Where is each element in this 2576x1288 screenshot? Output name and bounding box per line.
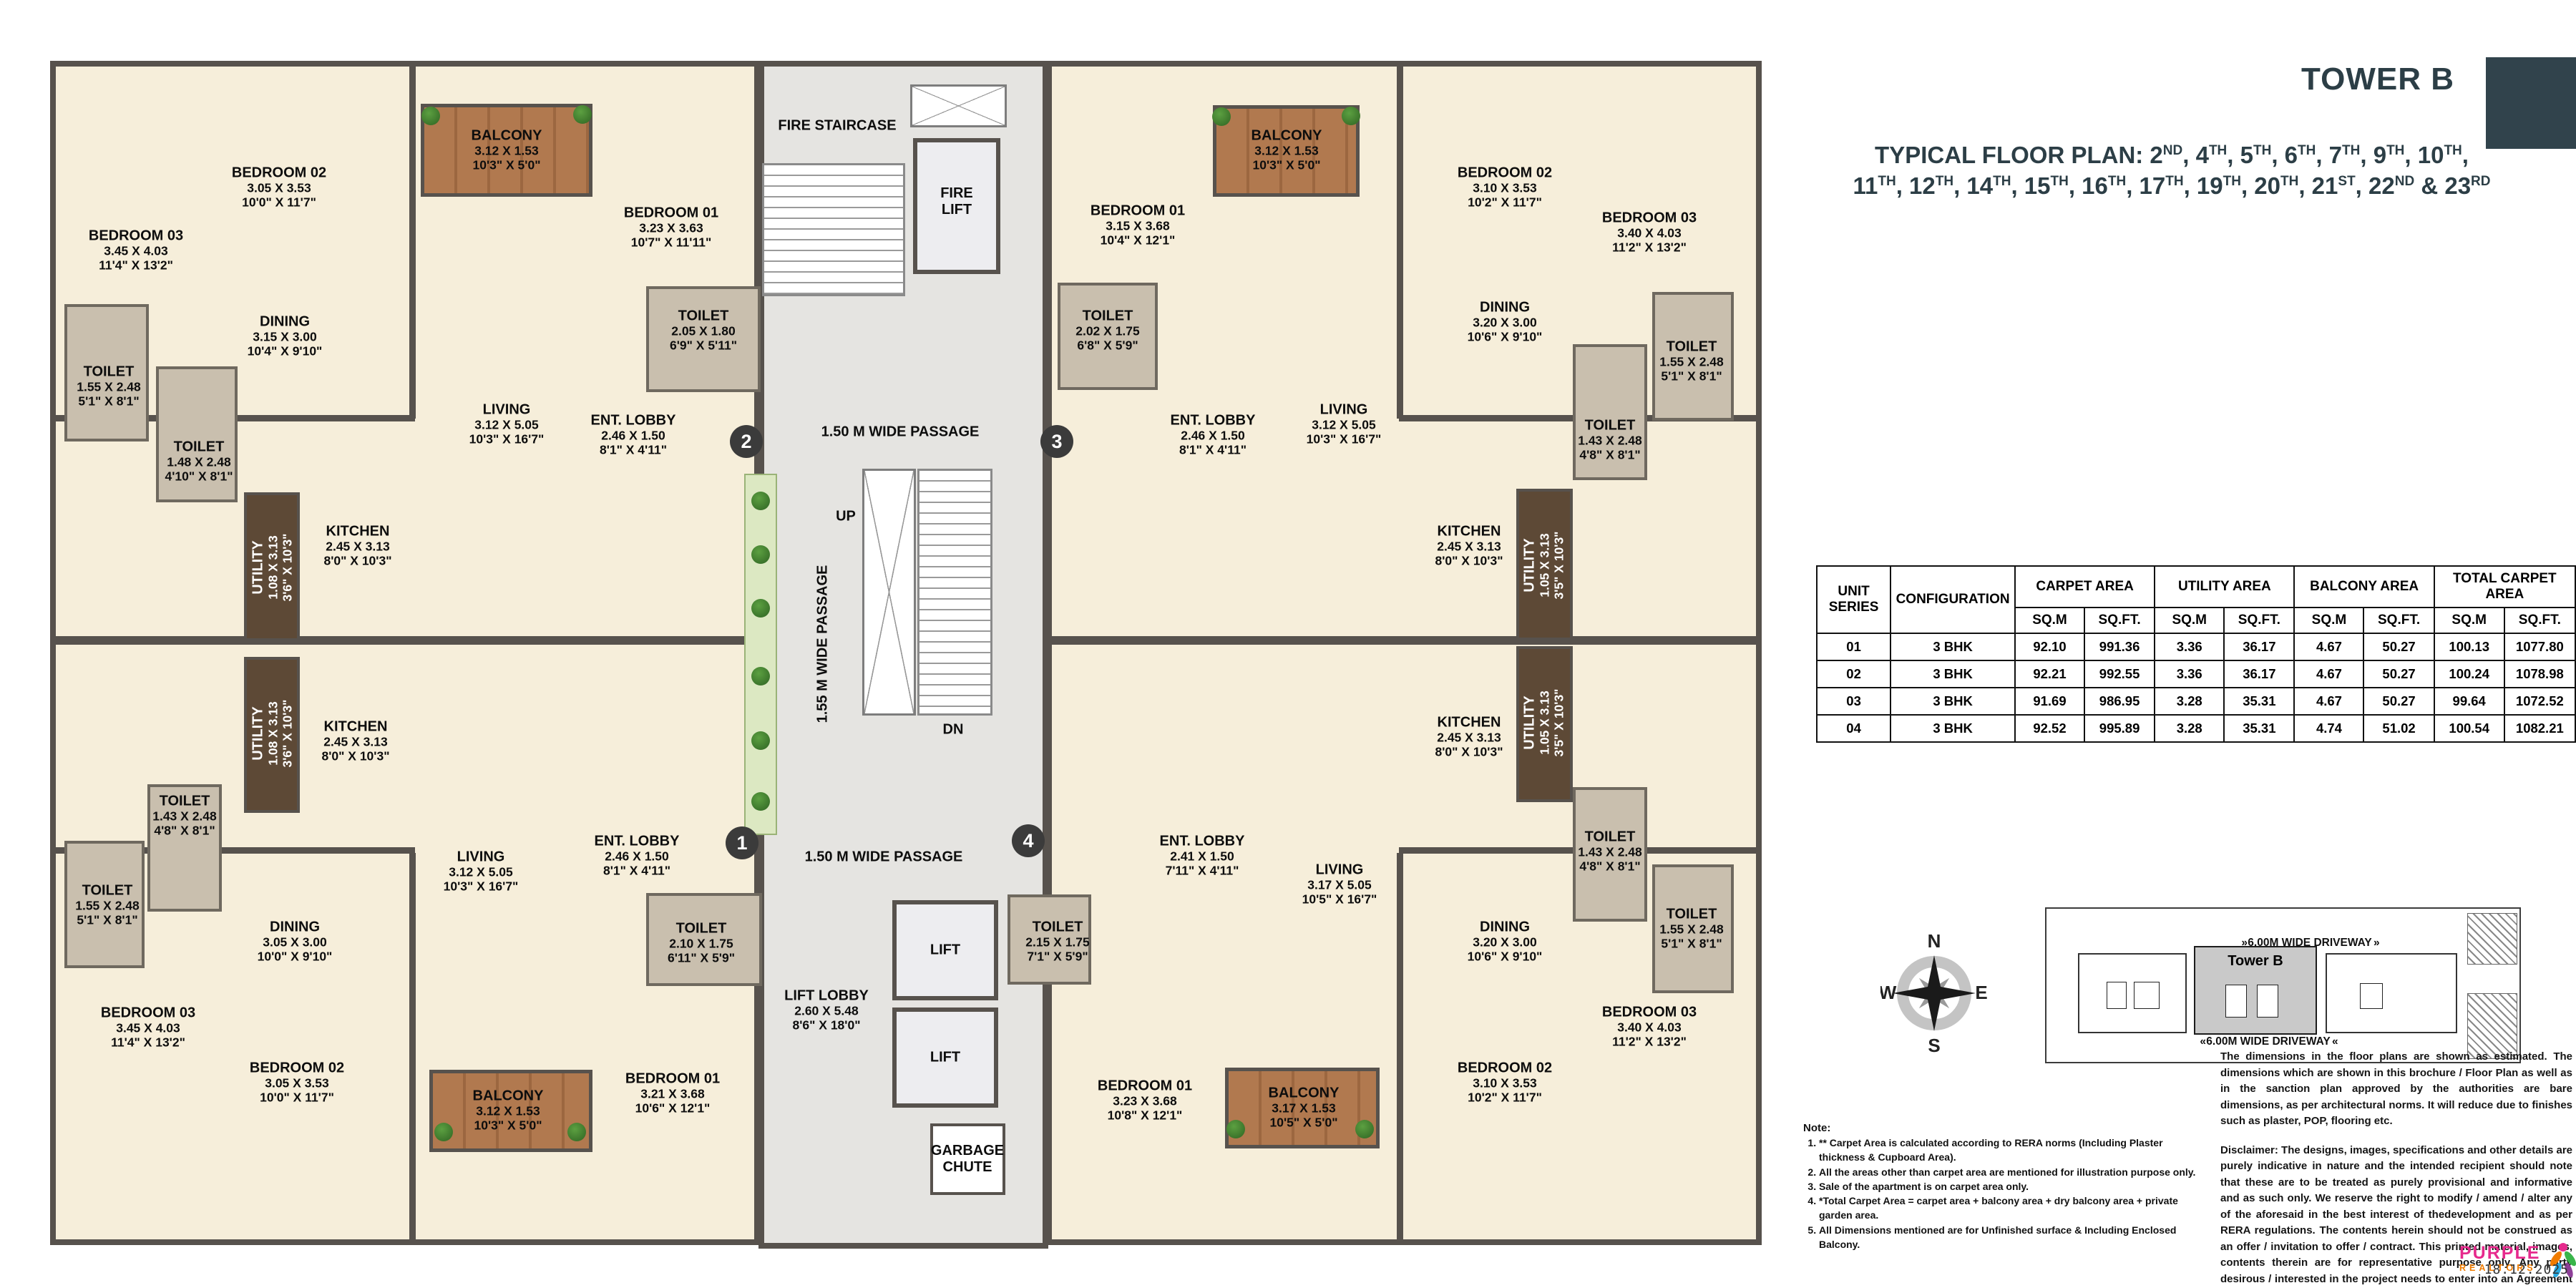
tree-icon	[751, 731, 770, 750]
site-building-left	[2078, 953, 2187, 1033]
shaft-zone	[910, 84, 1007, 127]
driveway-label-bottom: « 6.00M WIDE DRIVEWAY «	[2200, 1035, 2336, 1048]
room-label: KITCHEN2.45 X 3.138'0" X 10'3"	[322, 719, 390, 764]
room-label: UP	[836, 509, 856, 525]
room-label: TOILET2.02 X 1.756'8" X 5'9"	[1075, 308, 1140, 353]
room-label: DINING3.20 X 3.0010'6" X 9'10"	[1468, 300, 1543, 345]
room-label: ENT. LOBBY2.41 X 1.507'11" X 4'11"	[1160, 834, 1245, 879]
tree-icon	[434, 1123, 453, 1141]
site-plan: » 6.00M WIDE DRIVEWAY » « 6.00M WIDE DRI…	[2045, 907, 2521, 1063]
tree-icon	[751, 667, 770, 686]
tree-icon	[751, 792, 770, 811]
room-label: LIFT LOBBY2.60 X 5.488'6" X 18'0"	[784, 988, 869, 1033]
table-row: 043 BHK92.52995.893.2835.314.7451.02100.…	[1817, 715, 2575, 742]
table-row: 023 BHK92.21992.553.3636.174.6750.27100.…	[1817, 660, 2575, 688]
room-label: BEDROOM 023.10 X 3.5310'2" X 11'7"	[1458, 165, 1552, 210]
room-label: BALCONY3.17 X 1.5310'5" X 5'0"	[1269, 1085, 1340, 1131]
wall-segment	[409, 853, 416, 1245]
room-label: BEDROOM 013.23 X 3.6810'8" X 12'1"	[1098, 1078, 1192, 1123]
svg-text:S: S	[1928, 1035, 1940, 1056]
unit-area-table: UNIT SERIES CONFIGURATION CARPET AREA UT…	[1816, 565, 2576, 743]
tree-icon	[1226, 1120, 1245, 1138]
wall-segment	[409, 61, 416, 419]
unit-number-badge: 3	[1040, 425, 1073, 458]
room-label: UTILITY1.05 X 3.133'5" X 10'3"	[1522, 532, 1567, 600]
dimensions-note: The dimensions in the floor plans are sh…	[2220, 1049, 2572, 1130]
tree-icon	[751, 599, 770, 618]
page-title: TOWER B	[2218, 62, 2454, 97]
room-label: TOILET1.43 X 2.484'8" X 8'1"	[1578, 829, 1642, 874]
arrow-icon: »	[2372, 937, 2379, 949]
sub-header-sqft: SQ.FT.	[2363, 608, 2434, 633]
wall-segment	[1397, 61, 1403, 419]
room-label: BEDROOM 033.40 X 4.0311'2" X 13'2"	[1602, 210, 1697, 255]
sub-header-sqm: SQ.M	[2015, 608, 2084, 633]
room-label: ENT. LOBBY2.46 X 1.508'1" X 4'11"	[1171, 413, 1256, 458]
room-label: LIVING3.12 X 5.0510'3" X 16'7"	[444, 849, 519, 894]
room-label: BALCONY3.12 X 1.5310'3" X 5'0"	[1252, 128, 1322, 173]
room-label: TOILET1.55 X 2.485'1" X 8'1"	[77, 364, 141, 409]
room-label: FIRELIFT	[940, 185, 973, 218]
arrow-icon: «	[2331, 1035, 2337, 1048]
room-label: 1.50 M WIDE PASSAGE	[805, 849, 963, 866]
room-label: KITCHEN2.45 X 3.138'0" X 10'3"	[324, 524, 392, 569]
tree-icon	[1355, 1120, 1374, 1138]
room-label: FIRE STAIRCASE	[778, 118, 896, 135]
room-label: BEDROOM 013.23 X 3.6310'7" X 11'11"	[624, 205, 718, 250]
notes-block: Note: ** Carpet Area is calculated accor…	[1803, 1122, 2211, 1252]
unit-number-badge: 4	[1012, 824, 1045, 857]
col-header-balcony-area: BALCONY AREA	[2294, 566, 2434, 608]
room-label: UTILITY1.08 X 3.133'6" X 10'3"	[250, 700, 296, 768]
sub-header-sqft: SQ.FT.	[2504, 608, 2575, 633]
room-label: BEDROOM 033.45 X 4.0311'4" X 13'2"	[89, 228, 183, 273]
table-row: 013 BHK92.10991.363.3636.174.6750.27100.…	[1817, 633, 2575, 660]
sub-header-sqm: SQ.M	[2294, 608, 2363, 633]
room-label: ENT. LOBBY2.46 X 1.508'1" X 4'11"	[591, 413, 676, 458]
room-label: BEDROOM 033.45 X 4.0311'4" X 13'2"	[101, 1005, 195, 1050]
note-item: Sale of the apartment is on carpet area …	[1819, 1179, 2211, 1194]
unit-number-badge: 1	[726, 826, 758, 859]
brand-corner-square	[2486, 57, 2576, 149]
site-tower-label: Tower B	[2228, 953, 2283, 970]
room-label: BEDROOM 013.15 X 3.6810'4" X 12'1"	[1091, 203, 1185, 248]
room-label: DINING3.05 X 3.0010'0" X 9'10"	[258, 919, 333, 965]
room-label: LIVING3.12 X 5.0510'3" X 16'7"	[1307, 402, 1382, 447]
room-label: DINING3.20 X 3.0010'6" X 9'10"	[1468, 919, 1543, 965]
tree-icon	[1212, 107, 1231, 126]
room-label: GARBAGECHUTE	[931, 1143, 1004, 1176]
room-label: DN	[943, 722, 964, 738]
compass-rose-icon: N S W E	[1880, 929, 1988, 1058]
room-label: BEDROOM 013.21 X 3.6810'6" X 12'1"	[625, 1071, 720, 1116]
note-item: All the areas other than carpet area are…	[1819, 1165, 2211, 1179]
room-label: 1.50 M WIDE PASSAGE	[821, 424, 980, 441]
room-label: LIVING3.17 X 5.0510'5" X 16'7"	[1302, 862, 1377, 907]
wall-segment	[1397, 853, 1403, 1245]
room-label: UTILITY1.08 X 3.133'6" X 10'3"	[250, 534, 296, 602]
notes-title: Note:	[1803, 1122, 2211, 1134]
room-label: LIFT	[930, 1050, 960, 1066]
room-label: TOILET1.48 X 2.484'10" X 8'1"	[165, 439, 233, 484]
note-item: All Dimensions mentioned are for Unfinis…	[1819, 1223, 2211, 1252]
site-building-right	[2326, 953, 2457, 1033]
note-item: *Total Carpet Area = carpet area + balco…	[1819, 1194, 2211, 1223]
room-label: TOILET1.43 X 2.484'8" X 8'1"	[152, 794, 217, 839]
room-label: TOILET1.55 X 2.485'1" X 8'1"	[1659, 339, 1724, 384]
logo-name: PURPLE	[2459, 1244, 2540, 1262]
svg-text:E: E	[1975, 982, 1987, 1003]
room-label: KITCHEN2.45 X 3.138'0" X 10'3"	[1435, 524, 1503, 569]
tree-icon	[567, 1123, 586, 1141]
room-label: DINING3.15 X 3.0010'4" X 9'10"	[248, 314, 323, 359]
table-row: 033 BHK91.69986.953.2835.314.6750.2799.6…	[1817, 688, 2575, 715]
room-label: TOILET2.05 X 1.806'9" X 5'11"	[670, 308, 737, 353]
room-label: UTILITY1.05 X 3.133'5" X 10'3"	[1522, 689, 1567, 757]
room-label: TOILET2.10 X 1.756'11" X 5'9"	[668, 921, 735, 966]
col-header-configuration: CONFIGURATION	[1890, 566, 2015, 633]
col-header-carpet-area: CARPET AREA	[2015, 566, 2155, 608]
room-label: BEDROOM 023.10 X 3.5310'2" X 11'7"	[1458, 1060, 1552, 1106]
tree-icon	[751, 545, 770, 564]
wall-segment	[1046, 636, 1762, 645]
plan-subtitle-line1: TYPICAL FLOOR PLAN: 2ND, 4TH, 5TH, 6TH, …	[1789, 140, 2555, 171]
room-label: ENT. LOBBY2.46 X 1.508'1" X 4'11"	[595, 834, 680, 879]
sub-header-sqm: SQ.M	[2434, 608, 2504, 633]
col-header-total-carpet-area: TOTAL CARPET AREA	[2434, 566, 2575, 608]
site-building-tower-b: Tower B	[2194, 946, 2317, 1035]
note-item: ** Carpet Area is calculated according t…	[1819, 1136, 2211, 1165]
tree-icon	[751, 492, 770, 510]
room-label: TOILET1.55 X 2.485'1" X 8'1"	[1659, 907, 1724, 952]
planter-zone	[744, 474, 777, 835]
plan-subtitle: TYPICAL FLOOR PLAN: 2ND, 4TH, 5TH, 6TH, …	[1789, 140, 2555, 202]
room-label: TOILET2.15 X 1.757'1" X 5'9"	[1025, 919, 1090, 965]
room-label: BALCONY3.12 X 1.5310'3" X 5'0"	[473, 1088, 544, 1133]
room-label: LIVING3.12 X 5.0510'3" X 16'7"	[469, 402, 545, 447]
svg-text:N: N	[1928, 930, 1941, 952]
tree-icon	[573, 105, 592, 124]
sub-header-sqft: SQ.FT.	[2084, 608, 2155, 633]
shaft-zone	[862, 469, 916, 716]
room-label: BALCONY3.12 X 1.5310'3" X 5'0"	[472, 128, 542, 173]
stair-zone	[762, 163, 905, 296]
col-header-unit-series: UNIT SERIES	[1817, 566, 1890, 633]
room-label: LIFT	[930, 942, 960, 959]
room-label: KITCHEN2.45 X 3.138'0" X 10'3"	[1435, 715, 1503, 760]
col-header-utility-area: UTILITY AREA	[2155, 566, 2294, 608]
floor-plan-page: BEDROOM 033.45 X 4.0311'4" X 13'2"BEDROO…	[0, 0, 2576, 1288]
wall-segment	[50, 636, 760, 645]
room-label: 1.55 M WIDE PASSAGE	[815, 565, 831, 723]
room-label: TOILET1.55 X 2.485'1" X 8'1"	[75, 883, 140, 928]
plan-subtitle-line2: 11TH, 12TH, 14TH, 15TH, 16TH, 17TH, 19TH…	[1789, 171, 2555, 202]
arrow-icon: «	[2200, 1035, 2206, 1048]
room-label: TOILET1.43 X 2.484'8" X 8'1"	[1578, 418, 1642, 463]
tree-icon	[1342, 107, 1360, 125]
sub-header-sqft: SQ.FT.	[2224, 608, 2294, 633]
room-label: BEDROOM 033.40 X 4.0311'2" X 13'2"	[1602, 1005, 1697, 1050]
svg-text:W: W	[1880, 982, 1897, 1003]
site-hatch-area	[2467, 913, 2517, 965]
tree-icon	[421, 107, 440, 125]
stair-zone	[917, 469, 992, 716]
room-label: BEDROOM 023.05 X 3.5310'0" X 11'7"	[250, 1060, 344, 1106]
room-label: BEDROOM 023.05 X 3.5310'0" X 11'7"	[232, 165, 326, 210]
sub-header-sqm: SQ.M	[2155, 608, 2224, 633]
unit-number-badge: 2	[730, 425, 763, 458]
floorplan: BEDROOM 033.45 X 4.0311'4" X 13'2"BEDROO…	[0, 0, 1775, 1288]
date-stamp: 18.12.2025	[2433, 1262, 2569, 1277]
